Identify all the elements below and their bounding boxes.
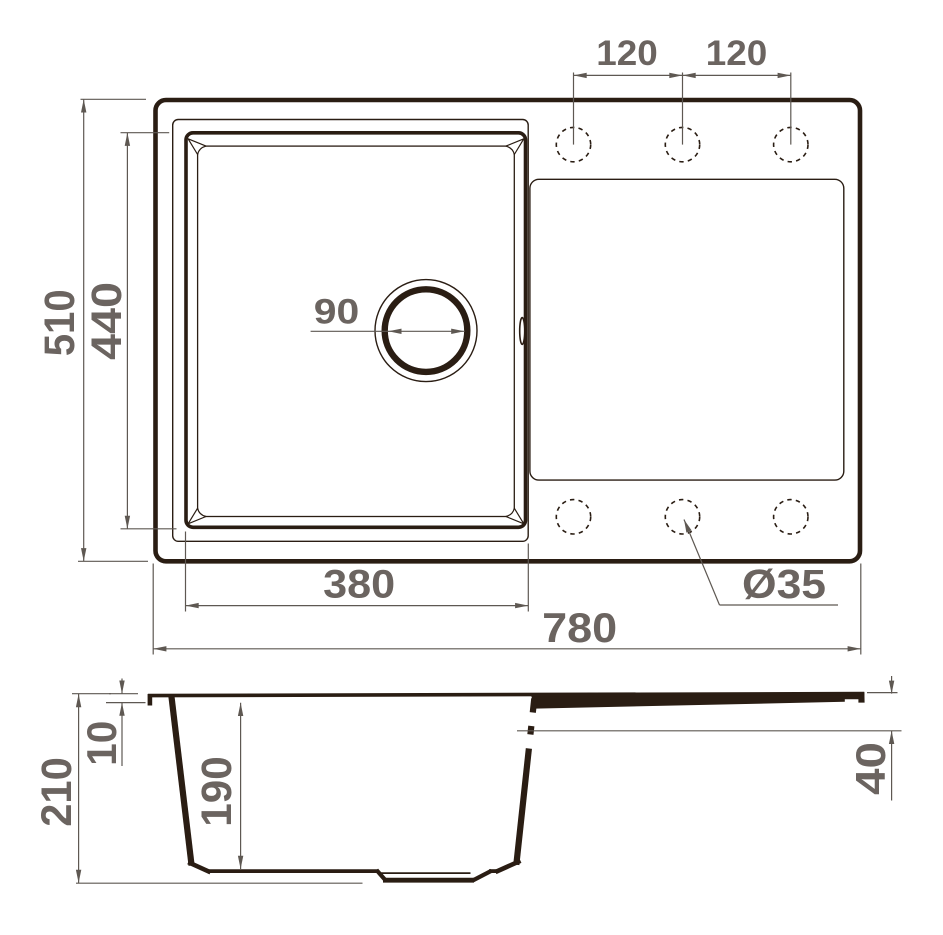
svg-text:120: 120 xyxy=(706,34,768,73)
svg-text:190: 190 xyxy=(193,756,241,827)
svg-text:380: 380 xyxy=(323,563,395,607)
svg-text:90: 90 xyxy=(314,293,360,332)
svg-text:120: 120 xyxy=(596,34,658,73)
svg-text:210: 210 xyxy=(33,757,81,827)
svg-text:40: 40 xyxy=(847,742,894,795)
svg-text:10: 10 xyxy=(78,721,125,766)
svg-text:440: 440 xyxy=(83,282,131,360)
svg-text:Ø35: Ø35 xyxy=(742,561,826,607)
svg-text:510: 510 xyxy=(36,289,84,356)
svg-text:780: 780 xyxy=(542,604,617,651)
